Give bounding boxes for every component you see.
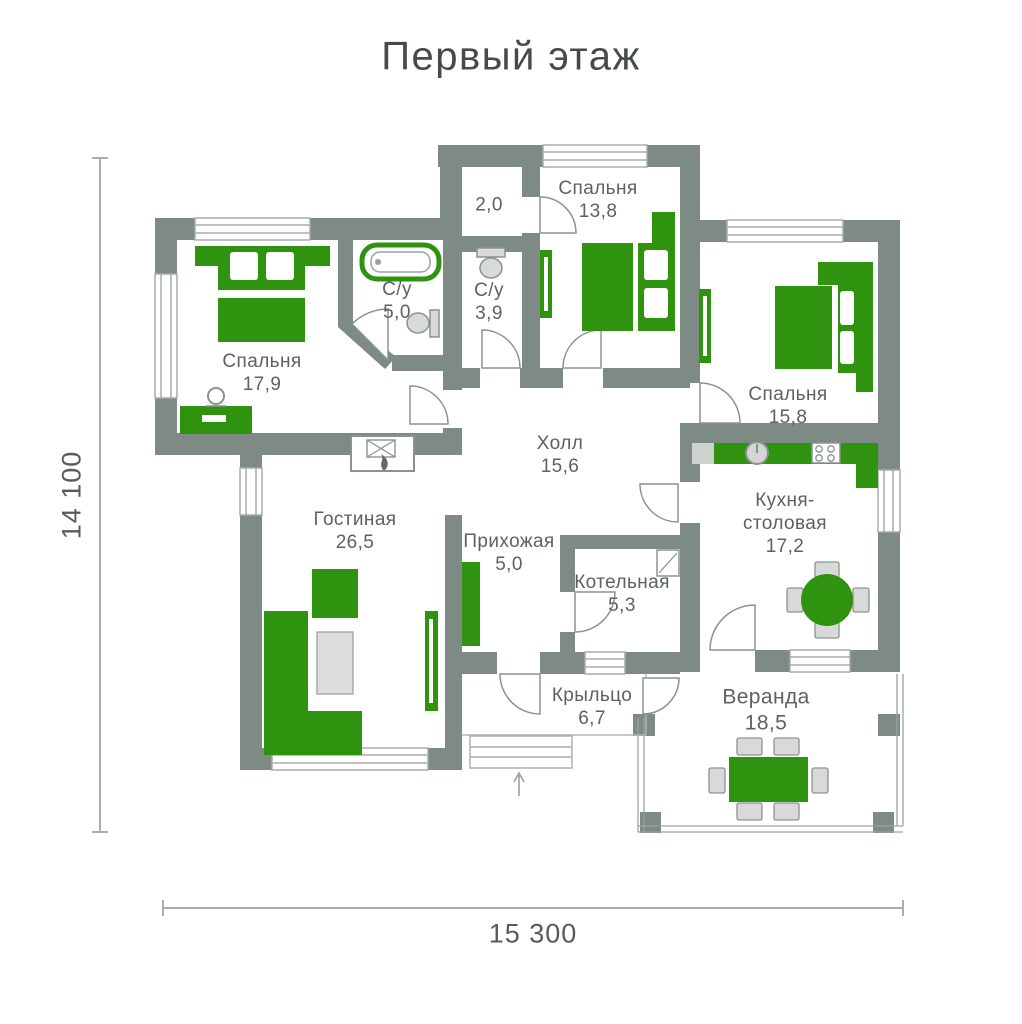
room-label-bedroom-17-9: Спальня17,9 [222,350,301,396]
room-label-porch: Крыльцо6,7 [552,684,632,730]
entrance-arrow-icon [514,773,524,796]
door-bath3 [482,330,520,368]
door-kitchen [640,484,678,522]
room-label-kitchen-dining: Кухня-столовая17,2 [743,489,827,559]
window-boiler-bottom [585,652,625,674]
room-label-bedroom-15-8: Спальня15,8 [748,383,827,429]
room-label-boiler-room: Котельная5,3 [574,571,670,617]
door-bedroom13 [563,330,601,368]
window-living-left [240,468,262,515]
room-label-living-room: Гостиная26,5 [314,508,397,554]
window-bedroom17-left [155,274,177,398]
fridge-icon [692,443,714,464]
door-bedroom15 [700,383,740,423]
window-kitchen-bottom [790,650,850,672]
dining-table-icon-kitchen [787,562,869,638]
floor-plan-page: Первый этаж [0,0,1022,1024]
door-entry-porch [500,674,540,714]
coffee-table-icon [317,632,353,694]
tv-icon-bedroom13 [540,250,552,318]
kitchen-counter-icon [714,442,878,488]
tv-icon-bedroom15 [699,289,711,363]
room-label-bedroom-13-8: Спальня13,8 [558,177,637,223]
bed-icon-bedroom15 [775,262,873,392]
fireplace-icon [351,436,414,471]
room-label-bath-3-9: С/у3,9 [474,279,504,325]
tv-icon-living [425,611,438,711]
window-bedroom15-top [727,220,843,242]
dining-table-icon-veranda [709,738,828,820]
floor-plan-drawing [0,0,1022,1024]
toilet-icon-bath3 [477,248,505,278]
door-bedroom17 [410,386,448,424]
window-kitchen-right [878,470,900,532]
door-veranda [643,678,679,714]
bed-icon-bedroom17 [195,246,330,342]
room-label-closet-2-0: 2,0 [475,193,503,216]
armchair-icon [312,569,358,618]
window-bedroom13-top [543,145,647,167]
door-kitchen-veranda [710,605,755,650]
room-label-hall: Холл15,6 [537,432,583,478]
room-label-bath-5-0: С/у5,0 [382,278,412,324]
room-label-entry-hall: Прихожая5,0 [463,530,554,576]
dimension-width: 15 300 [489,919,578,950]
room-label-veranda: Веранда18,5 [722,684,809,735]
porch-steps [470,736,572,768]
bed-icon-bedroom13 [582,212,675,331]
bathtub-icon [362,245,439,279]
dimension-height: 14 100 [57,451,88,540]
window-bedroom17-top [195,218,310,240]
